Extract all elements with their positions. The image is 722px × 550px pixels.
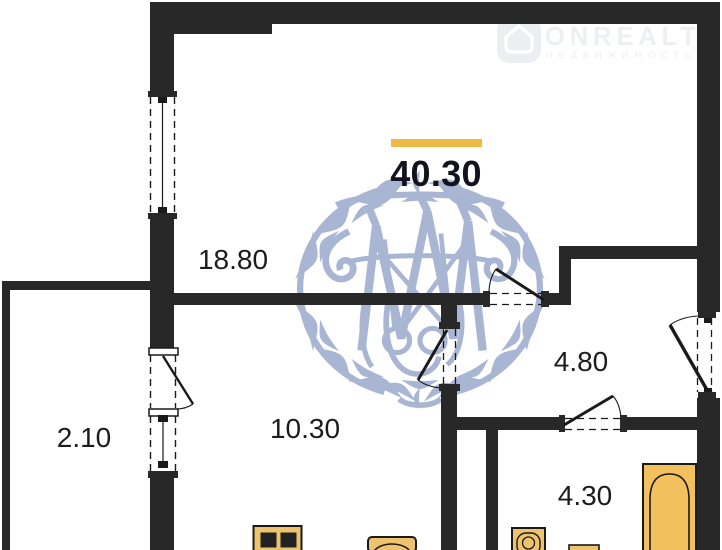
- svg-text:40.30: 40.30: [390, 153, 482, 194]
- svg-text:ONREALT: ONREALT: [545, 23, 701, 51]
- svg-text:4.30: 4.30: [558, 480, 613, 511]
- svg-text:НЕДВИЖИМОСТЬ: НЕДВИЖИМОСТЬ: [546, 50, 697, 61]
- svg-text:4.80: 4.80: [554, 346, 609, 377]
- svg-text:10.30: 10.30: [270, 413, 340, 444]
- svg-text:18.80: 18.80: [198, 244, 268, 275]
- svg-text:2.10: 2.10: [57, 422, 112, 453]
